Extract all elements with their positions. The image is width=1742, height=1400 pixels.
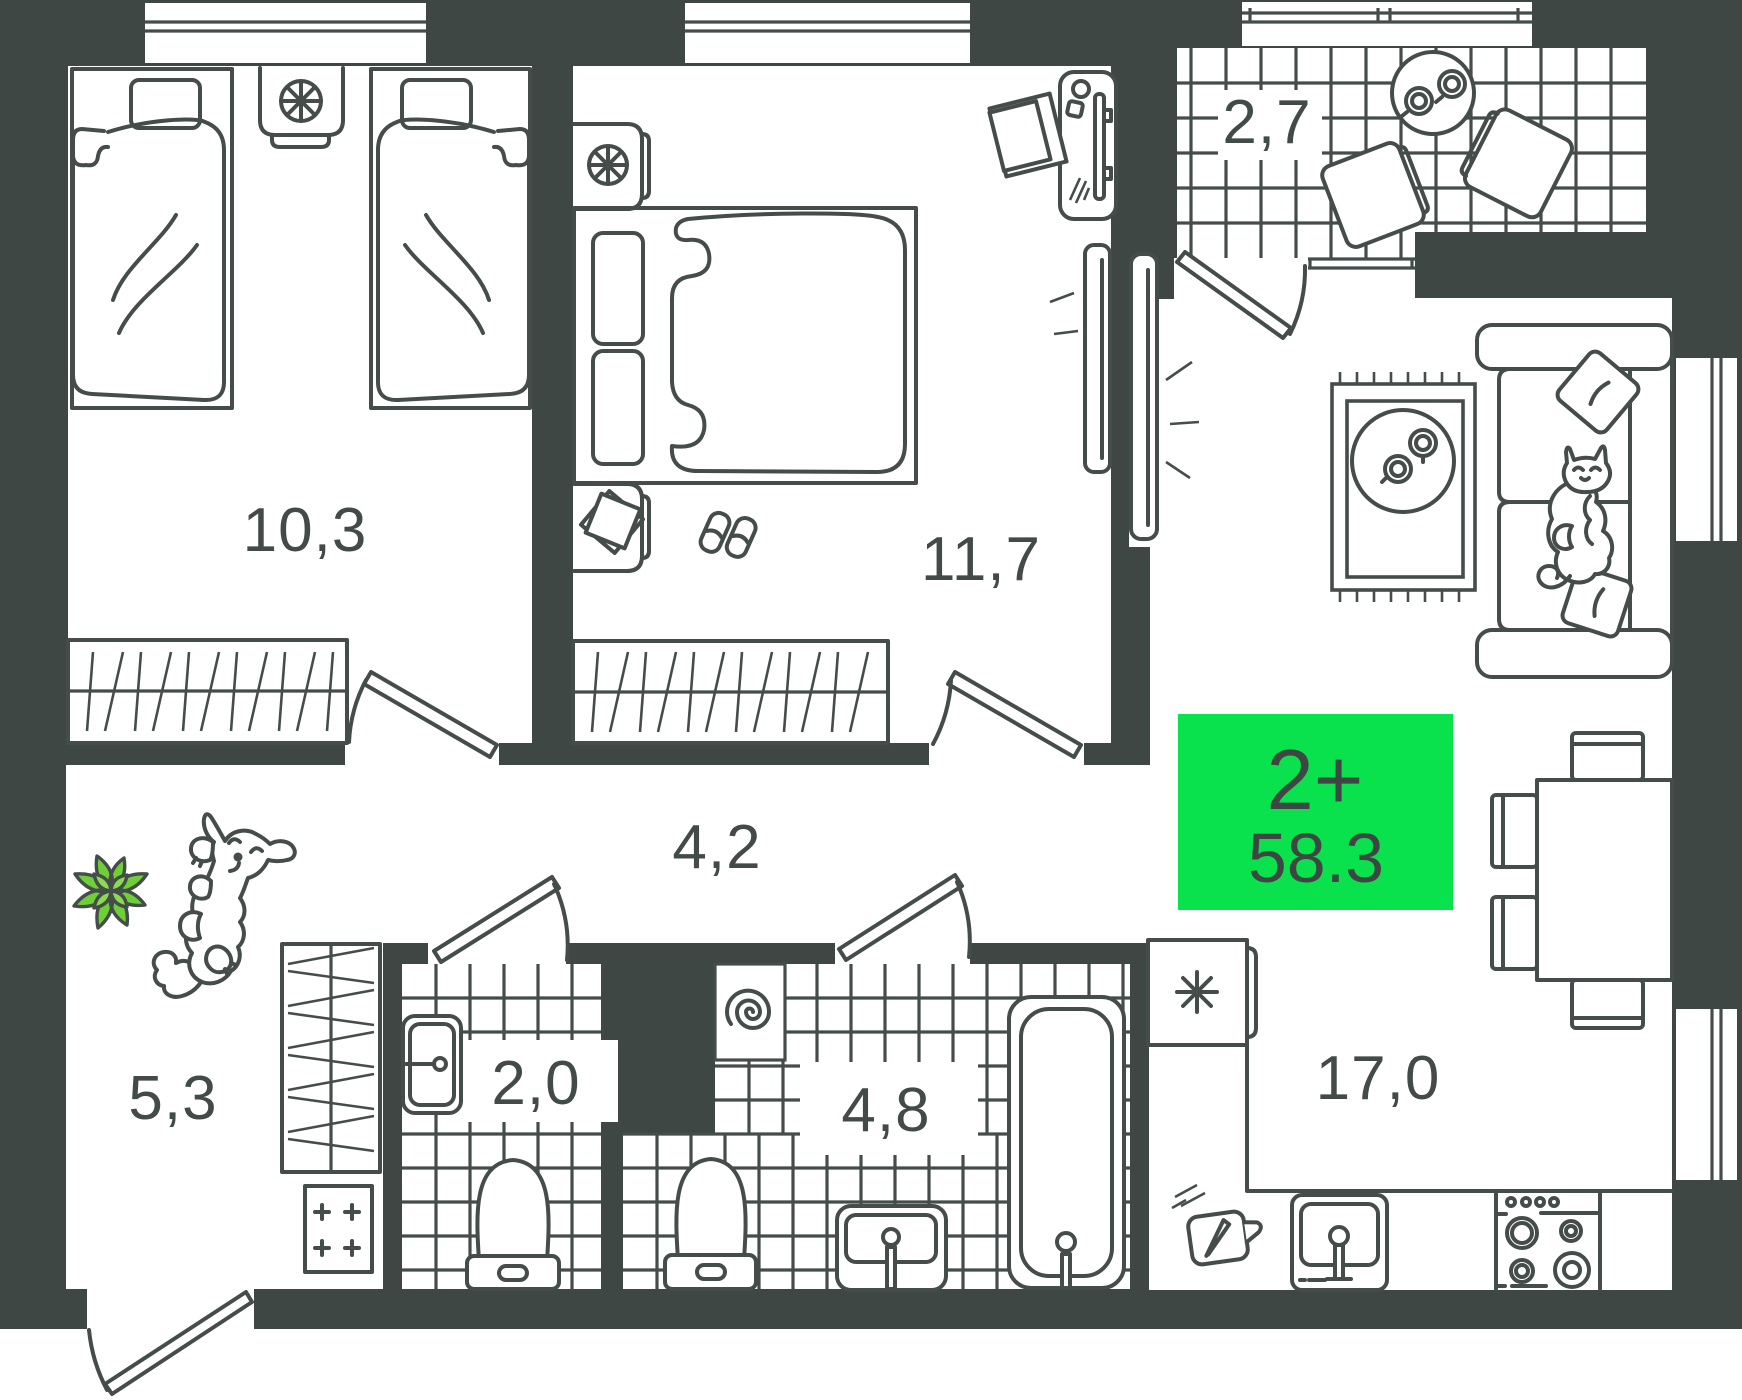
svg-text:2,0: 2,0 — [491, 1049, 580, 1118]
svg-text:10,3: 10,3 — [243, 496, 368, 565]
svg-text:58.3: 58.3 — [1248, 819, 1384, 897]
svg-text:2,7: 2,7 — [1222, 88, 1311, 157]
svg-text:5,3: 5,3 — [128, 1064, 217, 1133]
svg-text:11,7: 11,7 — [921, 525, 1041, 594]
svg-text:2+: 2+ — [1267, 733, 1364, 828]
svg-text:4,2: 4,2 — [672, 813, 761, 882]
svg-text:4,8: 4,8 — [841, 1076, 930, 1145]
svg-text:17,0: 17,0 — [1316, 1044, 1441, 1113]
